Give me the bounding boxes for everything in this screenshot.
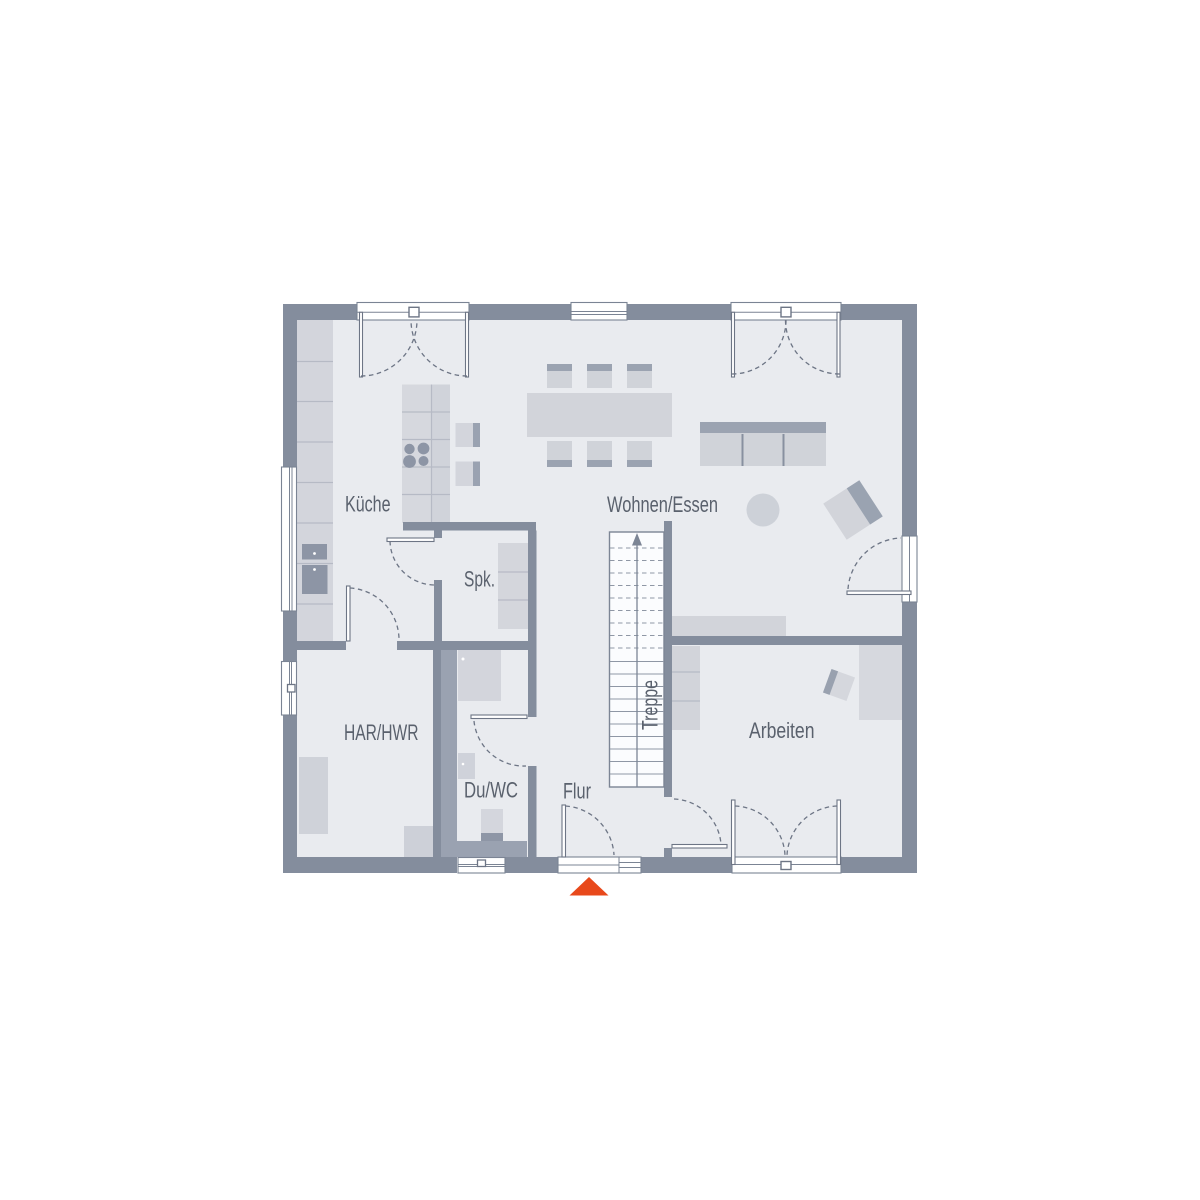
svg-text:Du/WC: Du/WC — [464, 778, 518, 803]
svg-text:Spk.: Spk. — [464, 567, 495, 592]
svg-text:Flur: Flur — [563, 779, 591, 804]
svg-text:HAR/HWR: HAR/HWR — [344, 720, 419, 745]
svg-text:Arbeiten: Arbeiten — [749, 718, 815, 743]
svg-text:Wohnen/Essen: Wohnen/Essen — [607, 492, 718, 517]
svg-text:Treppe: Treppe — [638, 680, 663, 730]
svg-text:Küche: Küche — [345, 492, 391, 517]
